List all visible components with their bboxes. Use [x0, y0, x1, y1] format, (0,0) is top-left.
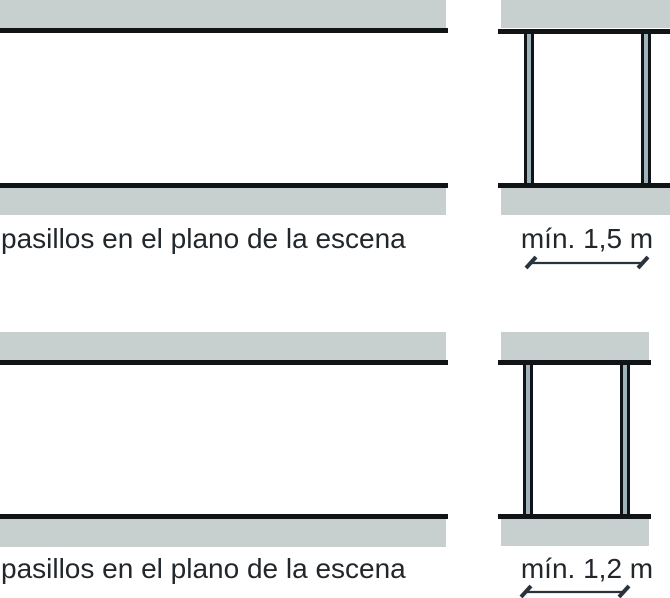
corridor-clearance-diagram: pasillos en el plano de la escena mín. 1… [0, 0, 670, 598]
bottom-plan-lower-wall-band [0, 519, 446, 547]
bottom-section-lower-slab-band [501, 519, 649, 546]
top-section-right-post [641, 34, 651, 183]
bottom-dimension-arrow [519, 583, 631, 598]
bottom-plan-upper-wall-band [0, 332, 446, 360]
top-dimension-arrow [524, 254, 650, 270]
top-plan-upper-corridor-edge [0, 28, 448, 33]
top-min-width-label: mín. 1,5 m [514, 224, 660, 254]
bottom-plan-caption: pasillos en el plano de la escena [1, 554, 406, 584]
bottom-min-width-label: mín. 1,2 m [514, 554, 660, 584]
bottom-section-left-post [523, 365, 533, 514]
top-plan-caption: pasillos en el plano de la escena [1, 224, 406, 254]
bottom-plan-upper-corridor-edge [0, 360, 448, 365]
top-section-lower-slab-band [501, 188, 670, 215]
top-plan-lower-wall-band [0, 188, 446, 215]
top-section-upper-slab-band [501, 0, 670, 28]
bottom-section-right-post [620, 365, 630, 514]
bottom-section-upper-slab-band [501, 332, 649, 360]
top-plan-upper-wall-band [0, 0, 446, 28]
top-section-left-post [524, 34, 534, 183]
